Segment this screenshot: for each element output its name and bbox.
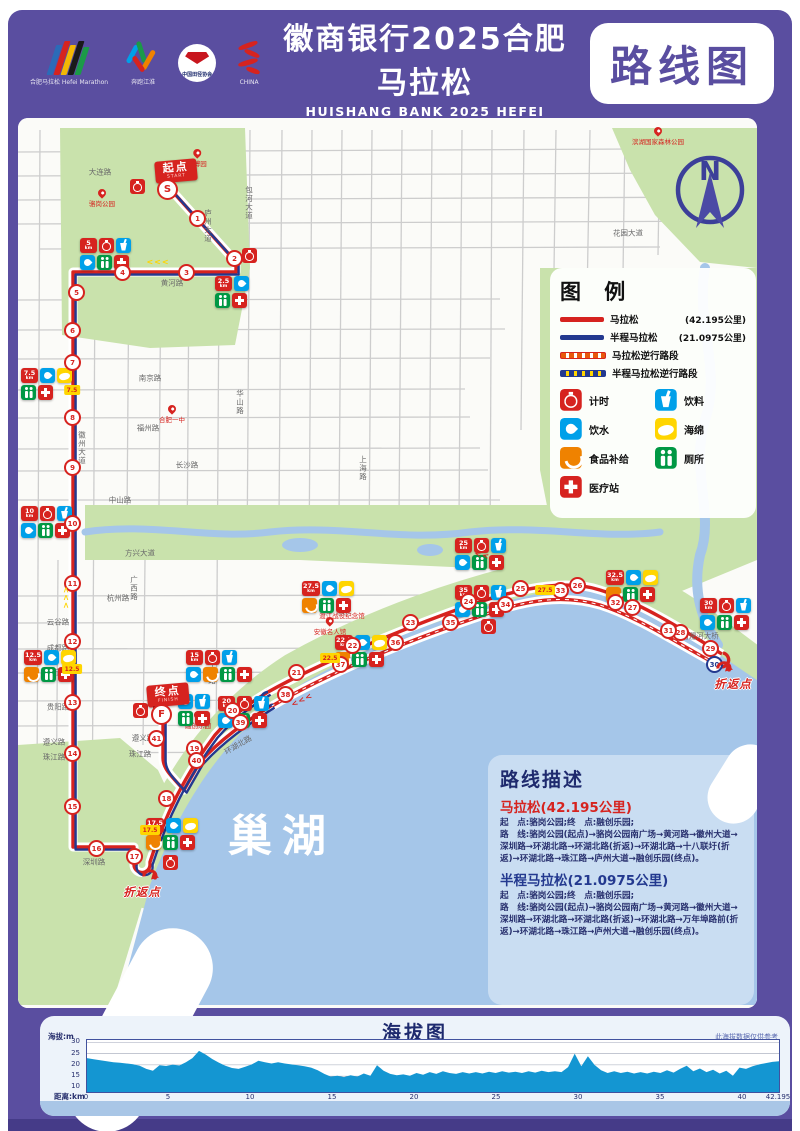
km-marker: 14	[64, 745, 81, 762]
km-marker: 35	[442, 614, 459, 631]
legend-line-item: 半程马拉松(21.0975公里)	[560, 330, 746, 344]
timing-icon	[481, 619, 496, 634]
drink-icon	[491, 538, 506, 553]
km-marker: 22	[344, 637, 361, 654]
dash-blue-swatch	[560, 370, 606, 377]
aid-station-row	[146, 835, 198, 850]
km-badge: 2.5km	[215, 276, 232, 291]
elevation-x-tick: 40	[738, 1093, 747, 1101]
km-marker: 7	[64, 354, 81, 371]
road-label: 福州路	[137, 423, 160, 434]
aid-station-cluster: 27.5km	[302, 581, 354, 613]
header: 合肥马拉松 Hefei Marathon 奔跑江淮 中国田径协会	[8, 10, 792, 116]
aid-station-row	[215, 293, 249, 308]
km-marker: 15	[64, 798, 81, 815]
toilet-icon	[319, 598, 334, 613]
km-marker: 25	[512, 580, 529, 597]
legend-icon-item: 饮料	[655, 389, 746, 411]
legend-icon-label: 计时	[589, 393, 609, 408]
km-marker: 1	[189, 210, 206, 227]
solid-blue-swatch	[560, 335, 604, 340]
km-marker: 10	[64, 515, 81, 532]
elevation-x-tick: 25	[492, 1093, 501, 1101]
road-label: 珠江路	[43, 752, 66, 763]
uturn-arrow-icon	[715, 657, 737, 676]
medical-icon	[237, 667, 252, 682]
km-marker: 4	[114, 264, 131, 281]
water-icon	[40, 368, 55, 383]
road-label: 上海路	[358, 455, 369, 481]
elevation-x-tick: 20	[410, 1093, 419, 1101]
sponge-icon	[339, 581, 354, 596]
elevation-profile-area	[87, 1051, 779, 1092]
distance-flag: 17.5	[140, 825, 160, 835]
legend-icon-label: 医疗站	[589, 480, 619, 495]
timing-icon	[560, 389, 582, 411]
elevation-y-tick: 15	[50, 1071, 80, 1079]
poi-label: 骆岗公园	[89, 198, 115, 208]
legend-icon-item: 医疗站	[560, 476, 651, 498]
road-label: 中山路	[109, 495, 132, 506]
water-icon	[322, 581, 337, 596]
food-icon	[24, 667, 39, 682]
legend-icon-item: 饮水	[560, 418, 651, 440]
legend-panel: 图 例 马拉松(42.195公里)半程马拉松(21.0975公里)马拉松逆行路段…	[550, 268, 756, 518]
km-marker: 24	[460, 593, 477, 610]
km-badge: 27.5km	[302, 581, 320, 596]
legend-icon-item: 食品补给	[560, 447, 651, 469]
km-marker: 18	[158, 790, 175, 807]
km-marker: 8	[64, 409, 81, 426]
km-marker: 23	[402, 614, 419, 631]
km-badge: 32.5km	[606, 570, 624, 585]
legend-line-note: (42.195公里)	[685, 313, 746, 326]
logo-strip: 合肥马拉松 Hefei Marathon 奔跑江淮 中国田径协会	[30, 41, 264, 86]
km-badge: 12.5km	[24, 650, 42, 665]
china-athletics-logo: CHINA	[234, 41, 264, 86]
aid-station-cluster: 2.5km	[215, 276, 249, 308]
km-badge: 30km	[700, 598, 717, 613]
road-label: 大连路	[89, 167, 112, 178]
athletics-association-seal: 中国田径协会	[178, 44, 216, 82]
route-description-section: 马拉松(42.195公里)起 点:骆岗公园;终 点:融创乐园;路 线:骆岗公园(…	[500, 796, 742, 865]
road-label: 花园大道	[613, 228, 643, 239]
route-description-title: 路线描述	[500, 765, 742, 792]
drink-icon	[222, 650, 237, 665]
elevation-x-tick: 0	[84, 1093, 88, 1101]
hefei-marathon-mark-icon	[47, 41, 92, 75]
poi-label: 合肥一中	[159, 414, 185, 424]
direction-chevrons: <<<	[62, 586, 71, 609]
compass: N	[668, 146, 752, 242]
water-icon-wrap	[560, 418, 582, 440]
km-marker: 29	[702, 640, 719, 657]
elevation-x-tick: 15	[328, 1093, 337, 1101]
km-marker: 26	[569, 577, 586, 594]
medical-icon	[195, 711, 210, 726]
medical-icon	[180, 835, 195, 850]
elevation-panel: 海拔图 海拔:m 此海拔数据仅供参考 距离:km 302520151005101…	[40, 1016, 790, 1116]
km-badge: 5km	[80, 238, 97, 253]
toilet-icon	[163, 835, 178, 850]
water-icon	[186, 667, 201, 682]
elevation-x-axis-label: 距离:km	[54, 1091, 85, 1102]
aid-station-row: 30km	[700, 598, 751, 613]
aid-station-row	[700, 615, 751, 630]
water-icon	[455, 555, 470, 570]
finish-flag: 终点FINISH	[147, 684, 189, 706]
road-label: 方兴大道	[125, 548, 155, 559]
map-pin-icon	[324, 615, 335, 626]
road-label: 遵义路	[43, 737, 66, 748]
aid-station-row: 12.5km	[24, 650, 76, 665]
poi-label: 滨湖国家森林公园	[632, 136, 684, 146]
benpao-jianghuai-logo: 奔跑江淮	[126, 41, 160, 86]
water-icon	[700, 615, 715, 630]
elevation-x-tick: 30	[574, 1093, 583, 1101]
toilet-icon	[38, 523, 53, 538]
legend-line-label: 半程马拉松	[610, 330, 658, 344]
toilet-icon	[352, 652, 367, 667]
timing-icon	[205, 650, 220, 665]
km-marker: 27	[624, 599, 641, 616]
distance-flag: 7.5	[64, 385, 80, 395]
event-title: 徽商银行2025合肥马拉松	[270, 14, 580, 102]
water-icon	[626, 570, 641, 585]
aid-station-row	[178, 711, 210, 726]
toilet-icon	[220, 667, 235, 682]
legend-line-label: 马拉松	[610, 312, 639, 326]
aid-station-row: 5km	[80, 238, 131, 253]
km-badge: 25km	[455, 538, 472, 553]
toilet-icon	[215, 293, 230, 308]
route-description-section: 半程马拉松(21.0975公里)起 点:骆岗公园;终 点:融创乐园;路 线:骆岗…	[500, 869, 742, 938]
seal-icon: 中国田径协会	[178, 44, 216, 82]
legend-icon-label: 饮料	[684, 393, 704, 408]
route-name: 马拉松(42.195公里)	[500, 796, 742, 816]
legend-icon-item: 海绵	[655, 418, 746, 440]
medical-icon	[38, 385, 53, 400]
toilet-icon-wrap	[655, 447, 677, 469]
km-marker: 16	[88, 840, 105, 857]
km-badge: 10km	[21, 506, 38, 521]
km-marker: 13	[64, 694, 81, 711]
route-map-badge: 路线图	[590, 23, 774, 104]
uturn-arrow-icon	[141, 865, 163, 884]
marathon-route-poster: 合肥马拉松 Hefei Marathon 奔跑江淮 中国田径协会	[0, 0, 800, 1131]
aid-station-row: 22.5km	[335, 635, 387, 650]
km-marker: 17	[126, 848, 143, 865]
legend-line-note: (21.0975公里)	[679, 331, 746, 344]
legend-line-item: 半程马拉松逆行路段	[560, 366, 746, 380]
elevation-x-tick: 42.195	[766, 1093, 790, 1101]
water-icon	[21, 523, 36, 538]
food-icon	[560, 447, 582, 469]
direction-chevrons: <<<	[146, 258, 169, 267]
km-marker: 32	[607, 594, 624, 611]
timing-icon	[719, 598, 734, 613]
legend-line-label: 半程马拉松逆行路段	[612, 366, 698, 380]
drink-icon	[195, 694, 210, 709]
elevation-y-tick: 20	[50, 1060, 80, 1068]
route-start-end: 起 点:骆岗公园;终 点:融创乐园;	[500, 891, 742, 903]
lake-label: 巢湖	[228, 800, 336, 864]
sponge-icon	[643, 570, 658, 585]
km-marker: 39	[232, 714, 249, 731]
sponge-icon-wrap	[655, 418, 677, 440]
medical-icon	[560, 476, 582, 498]
map-pin-icon	[191, 147, 202, 158]
aid-station-cluster: 15km	[186, 650, 252, 682]
km-marker: 2	[226, 250, 243, 267]
elevation-y-tick: 30	[50, 1037, 80, 1045]
timing-icon	[130, 179, 145, 194]
food-icon	[146, 835, 161, 850]
sponge-icon	[655, 418, 677, 440]
poi-pin: 合肥一中	[159, 405, 185, 424]
legend-icon-label: 厕所	[684, 451, 704, 466]
medical-icon	[252, 713, 267, 728]
road-label: 包河大道	[244, 186, 255, 220]
elevation-x-tick: 5	[166, 1093, 170, 1101]
km-marker: 34	[497, 596, 514, 613]
aid-station-cluster: 7.5km	[21, 368, 72, 400]
sponge-icon	[61, 650, 76, 665]
toilet-icon	[97, 255, 112, 270]
legend-icon-label: 海绵	[684, 422, 704, 437]
map-pin-icon	[652, 125, 663, 136]
food-icon-wrap	[560, 447, 582, 469]
km-badge: 15km	[186, 650, 203, 665]
medical-icon	[640, 587, 655, 602]
medical-icon	[336, 598, 351, 613]
poi-pin: 滨湖国家森林公园	[632, 127, 684, 146]
legend-icon-item: 计时	[560, 389, 651, 411]
route-path-text: 路 线:骆岗公园(起点)→骆岗公园南广场→黄河路→徽州大道→深圳路→环湖北路→环…	[500, 903, 742, 939]
distance-flag: 22.5	[320, 653, 340, 663]
legend-line-item: 马拉松(42.195公里)	[560, 312, 746, 326]
road-label: 长沙路	[176, 460, 199, 471]
km-marker: 3	[178, 264, 195, 281]
water-icon	[44, 650, 59, 665]
road-label: 南京路	[139, 373, 162, 384]
toilet-icon	[21, 385, 36, 400]
drink-icon	[736, 598, 751, 613]
km-marker: 12	[64, 633, 81, 650]
toilet-icon	[655, 447, 677, 469]
distance-flag: 27.5	[535, 585, 555, 595]
road-label: 云谷路	[47, 617, 70, 628]
hefei-marathon-logo: 合肥马拉松 Hefei Marathon	[30, 41, 108, 86]
distance-flag: 12.5	[62, 664, 82, 674]
legend-line-label: 马拉松逆行路段	[612, 348, 679, 362]
road-label: 黄河路	[161, 278, 184, 289]
aid-station-row: 27.5km	[302, 581, 354, 596]
km-marker: 6	[64, 322, 81, 339]
timing-icon	[133, 703, 148, 718]
toilet-icon	[717, 615, 732, 630]
map-pin-icon	[166, 403, 177, 414]
water-icon	[80, 255, 95, 270]
start-flag: 起点START	[155, 160, 197, 182]
route-name: 半程马拉松(21.0975公里)	[500, 869, 742, 889]
poi-pin: 骆岗公园	[89, 189, 115, 208]
timing-icon	[40, 506, 55, 521]
medical-icon	[369, 652, 384, 667]
medical-icon	[734, 615, 749, 630]
road-label: 深圳路	[83, 857, 106, 868]
water-icon	[166, 818, 181, 833]
km-marker: 5	[68, 284, 85, 301]
runner-mark-icon	[126, 41, 160, 75]
start-marker: S	[157, 179, 178, 200]
dash-red-swatch	[560, 352, 606, 359]
event-titles: “奔跑江淮”城市马拉松赛(合肥站) 徽商银行2025合肥马拉松 HUISHANG…	[270, 0, 580, 134]
elevation-chart	[86, 1039, 780, 1093]
legend-line-item: 马拉松逆行路段	[560, 348, 746, 362]
map-panel: N 巢湖 起点START S 终点FINISH F 图 例 马拉松(42.195…	[18, 118, 757, 1008]
road-label: 广西路	[129, 575, 140, 601]
elevation-x-tick: 10	[246, 1093, 255, 1101]
legend-icon-item: 厕所	[655, 447, 746, 469]
road-label: 杭州路	[107, 593, 130, 604]
km-marker: 36	[387, 634, 404, 651]
timing-icon	[99, 238, 114, 253]
turnaround-label: 折返点	[714, 676, 752, 692]
km-marker: 41	[148, 730, 165, 747]
road-label: 珠江路	[129, 749, 152, 760]
road-label: 徽州大道	[77, 431, 88, 465]
km-marker: 31	[660, 622, 677, 639]
medical-icon-wrap	[560, 476, 582, 498]
toilet-icon	[41, 667, 56, 682]
timing-icon-wrap	[560, 389, 582, 411]
route-path-text: 路 线:骆岗公园(起点)→骆岗公园南广场→黄河路→徽州大道→深圳路→环湖北路→环…	[500, 830, 742, 866]
legend-icon-label: 食品补给	[589, 451, 629, 466]
turnaround-label: 折返点	[123, 884, 161, 900]
km-marker: 40	[188, 752, 205, 769]
drink-icon	[655, 389, 677, 411]
route-start-end: 起 点:骆岗公园;终 点:融创乐园;	[500, 818, 742, 830]
km-marker: 9	[64, 459, 81, 476]
aid-station-row	[186, 667, 252, 682]
timing-icon	[242, 248, 257, 263]
aid-station-row: 7.5km	[21, 368, 72, 383]
drink-icon-wrap	[655, 389, 677, 411]
food-icon	[302, 598, 317, 613]
km-marker: 21	[288, 664, 305, 681]
map-pin-icon	[96, 187, 107, 198]
aid-station-cluster: 30km	[700, 598, 751, 630]
legend-title: 图 例	[560, 276, 746, 306]
road-label: 华山路	[235, 389, 246, 415]
ribbon-runner-icon	[234, 41, 264, 77]
drink-icon	[116, 238, 131, 253]
aid-station-row: 32.5km	[606, 570, 658, 585]
drink-icon	[254, 696, 269, 711]
legend-icon-label: 饮水	[589, 422, 609, 437]
aid-station-row: 15km	[186, 650, 252, 665]
aid-station-row: 2.5km	[215, 276, 249, 291]
water-icon	[560, 418, 582, 440]
elevation-y-tick: 25	[50, 1049, 80, 1057]
timing-icon	[163, 855, 178, 870]
finish-marker: F	[151, 704, 172, 725]
food-icon	[203, 667, 218, 682]
water-icon	[234, 276, 249, 291]
poi-pin: 安徽名人馆	[314, 617, 347, 636]
elevation-y-tick: 10	[50, 1082, 80, 1090]
sponge-icon	[183, 818, 198, 833]
km-badge: 7.5km	[21, 368, 38, 383]
medical-icon	[232, 293, 247, 308]
solid-red-swatch	[560, 317, 604, 322]
event-subtitle: “奔跑江淮”城市马拉松赛(合肥站)	[270, 0, 580, 12]
sponge-icon	[372, 635, 387, 650]
elevation-x-tick: 35	[656, 1093, 665, 1101]
toilet-icon	[178, 711, 193, 726]
aid-station-row	[302, 598, 354, 613]
